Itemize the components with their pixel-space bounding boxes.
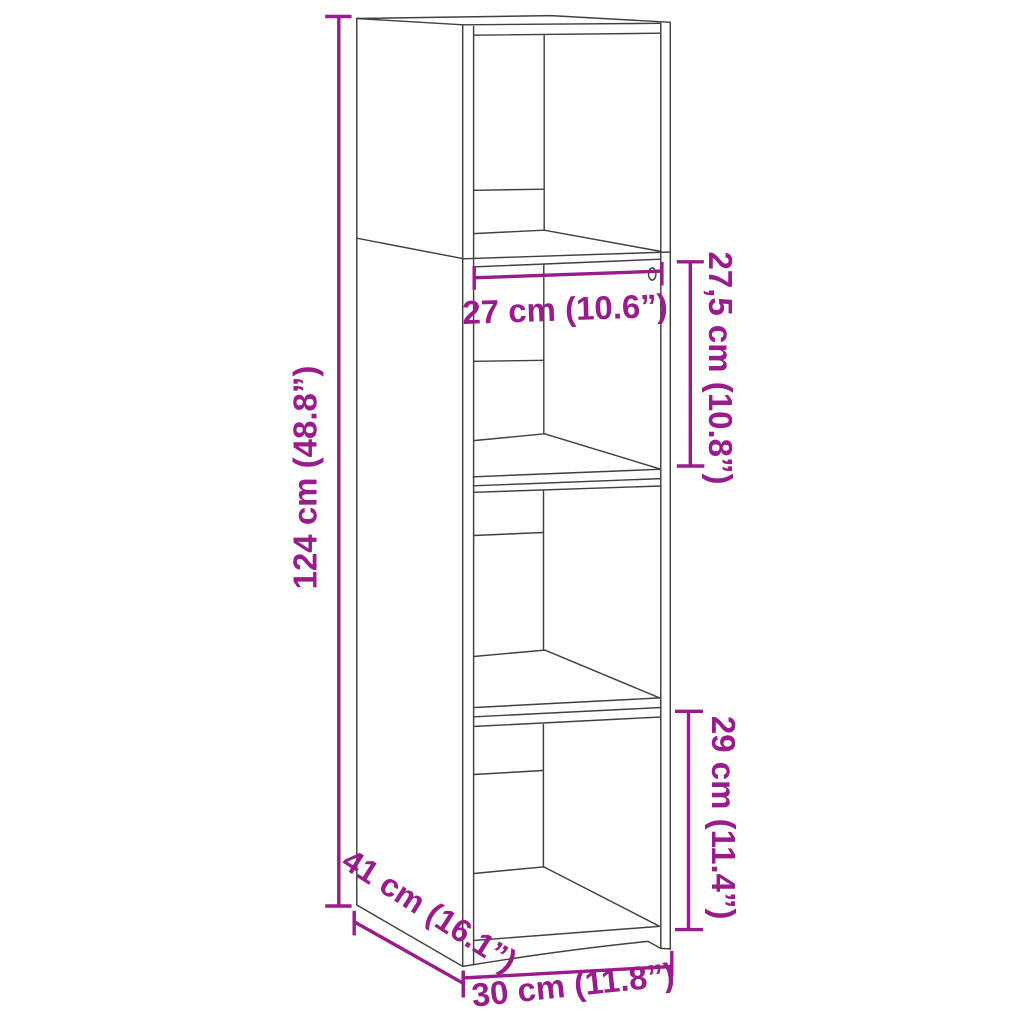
svg-text:27,5 cm (10.8”): 27,5 cm (10.8”) <box>702 252 739 485</box>
svg-text:27 cm (10.6”): 27 cm (10.6”) <box>462 287 669 331</box>
svg-text:41 cm (16.1”): 41 cm (16.1”) <box>336 842 523 979</box>
svg-text:124 cm (48.8”): 124 cm (48.8”) <box>287 366 324 590</box>
svg-text:29 cm (11.4”): 29 cm (11.4”) <box>705 716 742 920</box>
